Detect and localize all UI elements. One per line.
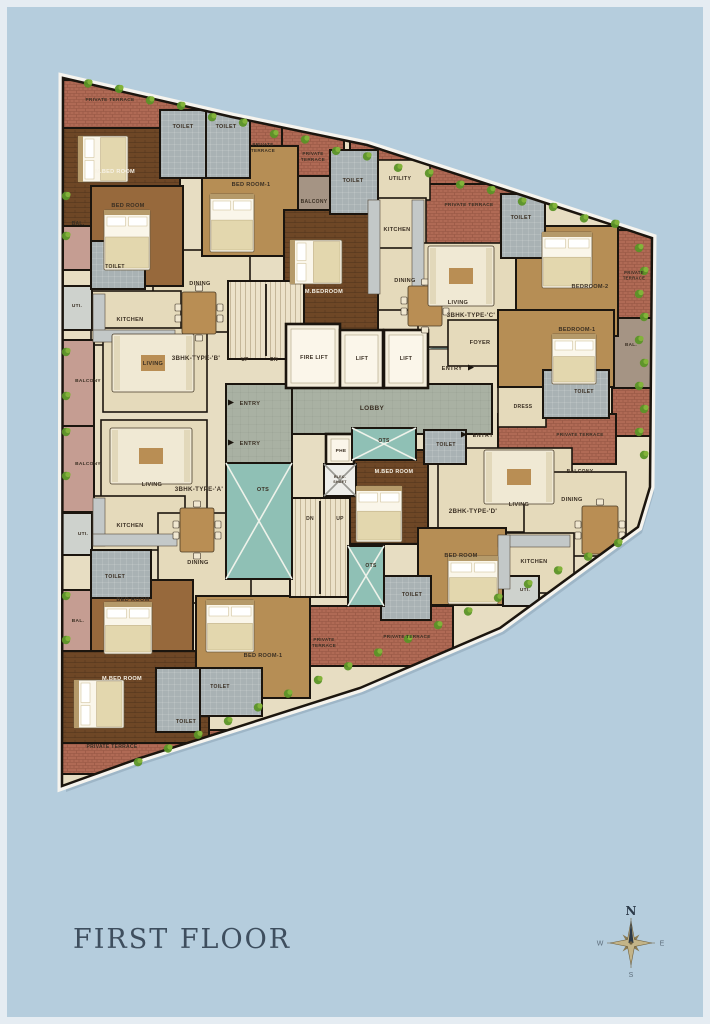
label-ots: OTS bbox=[365, 563, 377, 569]
bed bbox=[206, 600, 254, 652]
label-m-bedroom: M.BEDROOM bbox=[305, 289, 343, 295]
dining-table bbox=[175, 285, 223, 341]
toilet-d bbox=[381, 576, 431, 620]
label-toilet: TOILET bbox=[574, 389, 594, 395]
label-private-terrace: PRIVATE TERRACE bbox=[444, 202, 494, 208]
compass-rose: NESW bbox=[597, 904, 665, 979]
dining-table bbox=[575, 499, 625, 561]
label-private-terrace: PRIVATETERRACE bbox=[312, 637, 336, 648]
label-uti: UTI. bbox=[520, 587, 530, 593]
label-up: UP bbox=[336, 516, 344, 522]
label-bal: BAL. bbox=[72, 221, 85, 227]
label-toilet: TOILET bbox=[105, 574, 126, 580]
label-utility: UTILITY bbox=[389, 176, 412, 182]
label-dress: DRESS bbox=[514, 404, 533, 410]
label-balcony: BALCONY bbox=[567, 469, 594, 475]
label-dining: DINING bbox=[189, 281, 210, 287]
bed bbox=[552, 334, 596, 384]
label-bal: BAL. bbox=[625, 342, 637, 347]
label-up: UP bbox=[241, 357, 249, 363]
label-bed-room-1: BED ROOM-1 bbox=[244, 653, 283, 659]
counter bbox=[498, 535, 510, 589]
floor-title: FIRST FLOOR bbox=[73, 924, 291, 955]
label-ots: OTS bbox=[378, 438, 390, 444]
sofa-set bbox=[110, 428, 192, 484]
bed bbox=[290, 240, 342, 284]
label-dining: DINING bbox=[394, 278, 415, 284]
label-3bhk-type-b: 3BHK-TYPE-'B' bbox=[172, 355, 221, 362]
entry-label: ENTRY bbox=[240, 401, 261, 407]
compass-south: S bbox=[629, 972, 634, 979]
bed bbox=[104, 210, 150, 270]
toilet-a2 bbox=[196, 668, 262, 716]
label-toilet: TOILET bbox=[210, 684, 230, 690]
label-uti: UTI. bbox=[78, 531, 88, 537]
label-phe: PHE bbox=[336, 448, 347, 454]
entry-label: ENTRY bbox=[240, 441, 261, 447]
label-bed-room: BED ROOM bbox=[116, 597, 149, 603]
compass-north: N bbox=[626, 904, 637, 918]
label-private-terrace: PRIVATE TERRACE bbox=[87, 744, 138, 750]
label-bal: BAL. bbox=[72, 618, 84, 624]
label-toilet: TOILET bbox=[511, 215, 532, 221]
label-bedroom-1: BEDROOM-1 bbox=[559, 327, 596, 333]
label-kitchen: KITCHEN bbox=[117, 317, 144, 323]
label-living: LIVING bbox=[142, 482, 162, 488]
label-dn: DN bbox=[306, 516, 314, 522]
label-uti: UTI. bbox=[72, 303, 82, 309]
label-lift: LIFT bbox=[400, 356, 413, 362]
label-private-terrace: PRIVATE TERRACE bbox=[556, 432, 603, 437]
floor-plan: PRIVATE TERRACETOILETTOILETPRIVATETERRAC… bbox=[0, 0, 710, 1024]
dining-table bbox=[173, 501, 221, 559]
label-private-terrace: PRIVATETERRACE bbox=[301, 151, 325, 162]
bed bbox=[74, 680, 124, 728]
sofa-set bbox=[484, 450, 554, 504]
counter bbox=[368, 200, 380, 294]
bed bbox=[78, 136, 128, 182]
label-living: LIVING bbox=[509, 502, 529, 508]
label-kitchen: KITCHEN bbox=[521, 559, 548, 565]
label-toilet: TOILET bbox=[173, 124, 194, 130]
label-bed-room-1: BED ROOM-1 bbox=[232, 182, 271, 188]
label-living: LIVING bbox=[143, 361, 163, 367]
entry-label: ENTRY bbox=[473, 433, 494, 439]
bed bbox=[210, 194, 254, 252]
label-toilet: TOILET bbox=[436, 442, 456, 448]
label-living: LIVING bbox=[448, 300, 468, 306]
label-m-bed-room: M.BED ROOM bbox=[375, 469, 414, 475]
label-dining: DINING bbox=[561, 497, 582, 503]
compass-east: E bbox=[660, 941, 665, 948]
label-dn: DN bbox=[270, 357, 278, 363]
sofa-set bbox=[428, 246, 494, 306]
label-kitchen: KITCHEN bbox=[117, 523, 144, 529]
label-fire-lift: FIRE LIFT bbox=[300, 355, 328, 361]
bed bbox=[448, 556, 498, 604]
label-balcony: BALCONY bbox=[301, 199, 328, 205]
label-toilet: TOILET bbox=[216, 124, 237, 130]
label-3bhk-type-a: 3BHK-TYPE-'A' bbox=[175, 486, 224, 493]
counter bbox=[93, 534, 177, 546]
label-3bhk-type-c: 3BHK-TYPE-'C' bbox=[447, 312, 496, 319]
label-private-terrace: PRIVATETERRACE bbox=[623, 270, 645, 280]
bed bbox=[104, 602, 152, 654]
label-private-terrace: PRIVATE TERRACE bbox=[85, 97, 135, 103]
label-bed-room: BED ROOM bbox=[444, 553, 477, 559]
label-toilet: TOILET bbox=[402, 592, 423, 598]
label-kitchen: KITCHEN bbox=[384, 227, 411, 233]
bed bbox=[356, 486, 402, 542]
entry-label: ENTRY bbox=[442, 366, 463, 372]
shrub bbox=[134, 758, 143, 766]
toilet-b1 bbox=[160, 110, 206, 178]
label-toilet: TOILET bbox=[105, 264, 125, 270]
bed bbox=[542, 232, 592, 288]
label-lobby: LOBBY bbox=[360, 405, 385, 412]
label-balcony: BALCONY bbox=[75, 461, 101, 467]
label-bedroom-2: BEDROOM-2 bbox=[572, 284, 609, 290]
label-toilet: TOILET bbox=[176, 719, 197, 725]
label-m-bed-room: M.BED ROOM bbox=[95, 169, 135, 175]
label-private-terrace: PRIVATETERRACE bbox=[251, 142, 275, 153]
label-private-terrace: PRIVATE TERRACE bbox=[383, 634, 430, 639]
label-foyer: FOYER bbox=[470, 340, 491, 346]
label-2bhk-type-d: 2BHK-TYPE-'D' bbox=[449, 508, 498, 515]
compass-west: W bbox=[597, 941, 604, 948]
balcony-left-2 bbox=[62, 426, 94, 512]
label-ots: OTS bbox=[257, 487, 269, 493]
page: PRIVATE TERRACETOILETTOILETPRIVATETERRAC… bbox=[0, 0, 710, 1024]
label-balcony: BALCONY bbox=[75, 378, 101, 384]
label-toilet: TOILET bbox=[343, 178, 364, 184]
label-m-bed-room: M.BED ROOM bbox=[102, 676, 142, 682]
label-dining: DINING bbox=[187, 560, 208, 566]
label-lift: LIFT bbox=[356, 356, 369, 362]
label-elec-shaft: ELEC.SHAFT bbox=[333, 475, 347, 484]
label-bed-room: BED ROOM bbox=[111, 203, 144, 209]
